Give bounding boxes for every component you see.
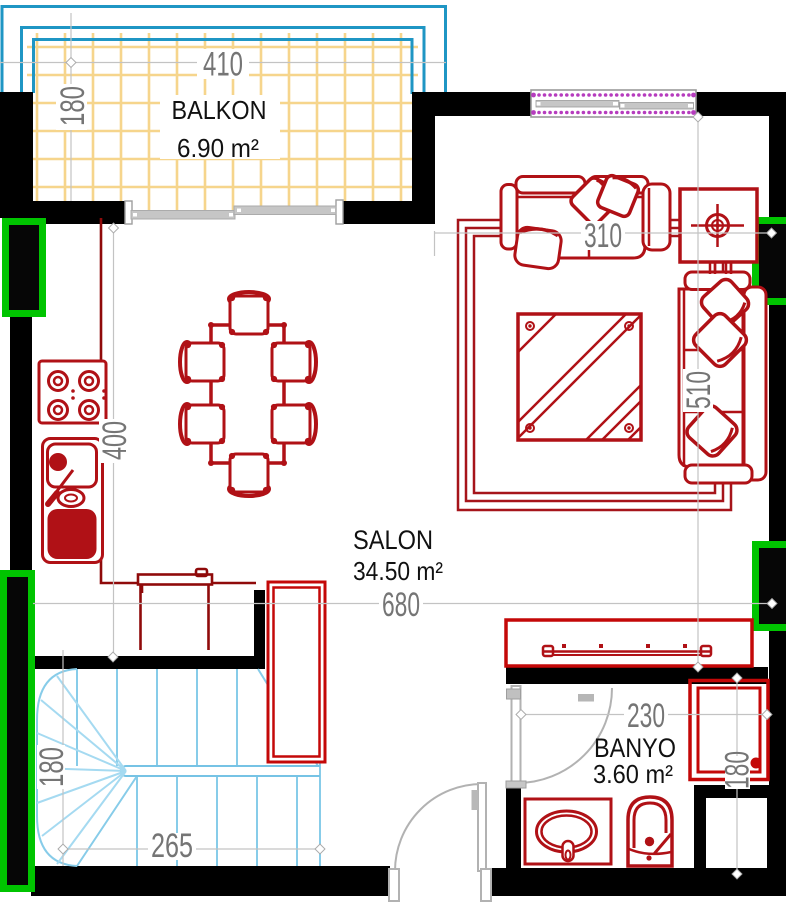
svg-text:180: 180 — [54, 86, 92, 126]
svg-text:310: 310 — [584, 217, 622, 255]
svg-text:510: 510 — [680, 371, 718, 409]
svg-text:BALKON: BALKON — [172, 95, 267, 125]
svg-text:265: 265 — [151, 827, 193, 865]
svg-text:34.50 m²: 34.50 m² — [353, 556, 443, 586]
svg-text:410: 410 — [203, 46, 243, 84]
svg-text:3.60 m²: 3.60 m² — [593, 759, 673, 789]
svg-text:680: 680 — [382, 586, 420, 624]
svg-text:400: 400 — [96, 421, 134, 460]
svg-text:230: 230 — [627, 697, 665, 735]
svg-text:6.90 m²: 6.90 m² — [177, 133, 259, 163]
svg-text:SALON: SALON — [353, 525, 433, 555]
svg-text:180: 180 — [719, 751, 757, 789]
svg-text:180: 180 — [33, 747, 71, 787]
